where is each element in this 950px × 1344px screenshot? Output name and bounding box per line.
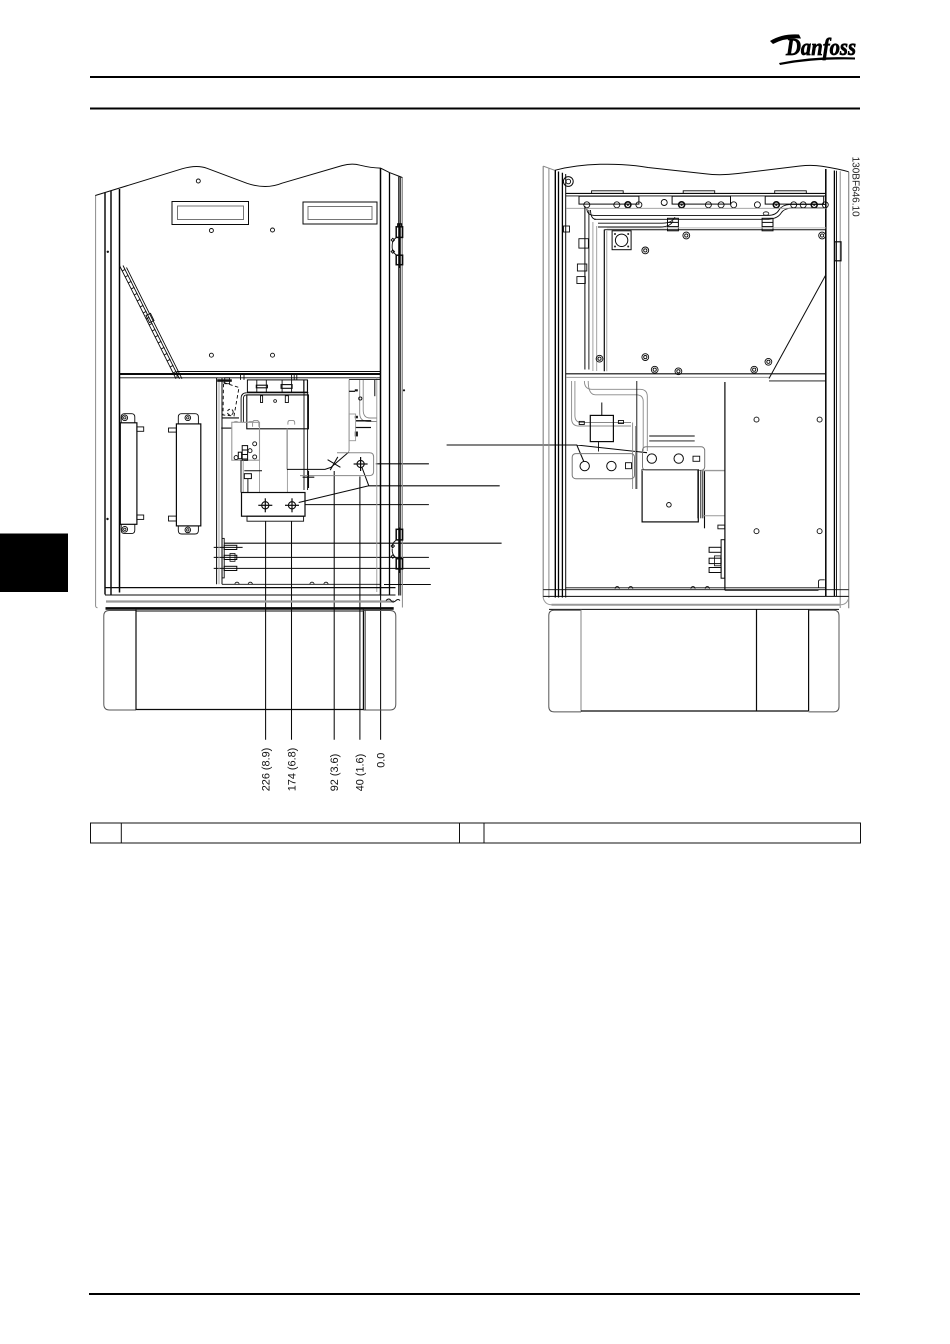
svg-text:130BF646.10: 130BF646.10: [850, 157, 861, 217]
svg-text:Danfoss: Danfoss: [785, 35, 856, 61]
svg-text:40 (1.6): 40 (1.6): [355, 754, 367, 792]
svg-text:174 (6.8): 174 (6.8): [286, 748, 298, 792]
svg-text:92 (3.6): 92 (3.6): [329, 754, 341, 792]
svg-text:0.0: 0.0: [375, 753, 387, 768]
svg-text:226 (8.9): 226 (8.9): [260, 748, 272, 792]
